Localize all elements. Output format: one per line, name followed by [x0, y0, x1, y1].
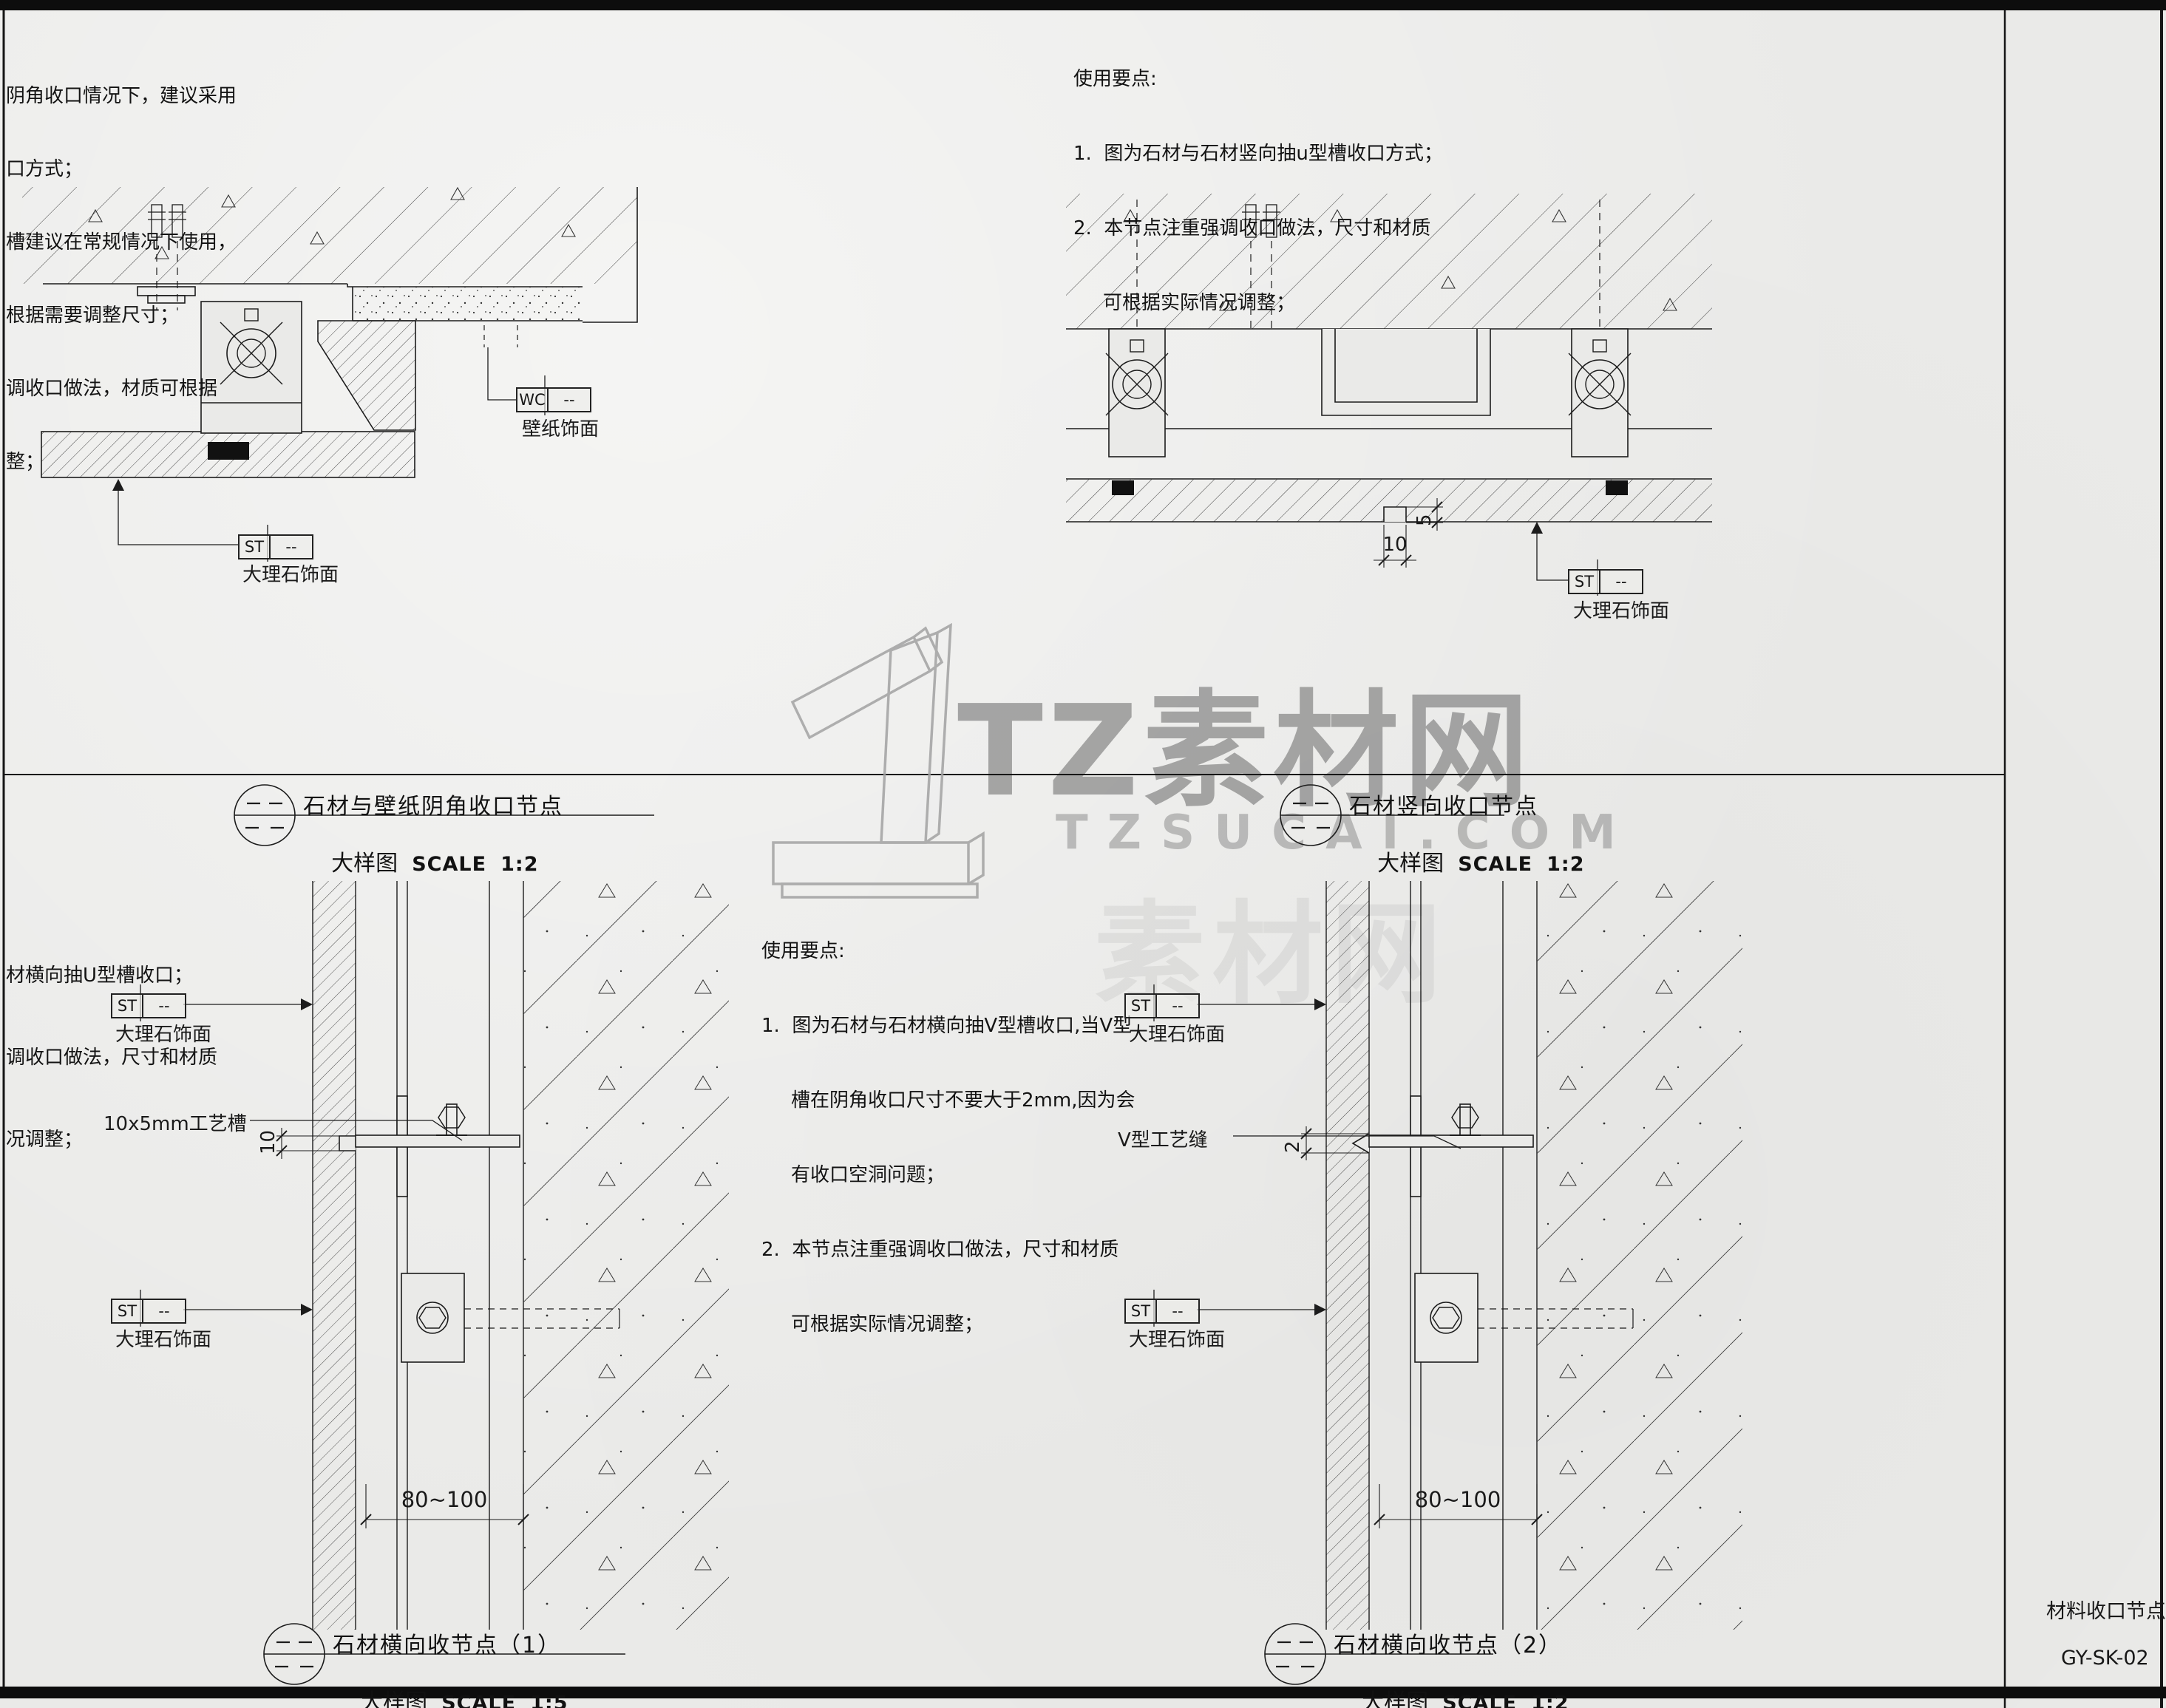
subtitle-type: 大样图 — [1362, 1690, 1428, 1708]
tag-code: ST — [1126, 1300, 1155, 1322]
note-line: 可根据实际情况调整； — [761, 1312, 1135, 1336]
tag-code: ST — [240, 536, 269, 558]
tag-value: -- — [1155, 995, 1198, 1017]
subtitle-type: 大样图 — [361, 1690, 427, 1708]
tag-code: ST — [1569, 571, 1599, 593]
top-border-bar — [0, 0, 2166, 10]
subtitle-type: 大样图 — [331, 851, 398, 877]
note-line: 阴角收口情况下，建议采用 — [6, 84, 237, 109]
note-line: 有收口空洞问题； — [761, 1163, 1135, 1187]
subtitle-scale-value: 1:5 — [530, 1692, 568, 1708]
detail-subtitle-d1: 大样图 SCALE 1:2 — [303, 819, 539, 903]
note-line: 槽建议在常规情况下使用， — [6, 231, 237, 255]
leader-arrow — [1314, 998, 1326, 1010]
material-tag-st-d1: ST -- — [238, 534, 313, 559]
dim-80-100-d3: 80~100 — [390, 1487, 498, 1512]
leader-arrow — [1531, 522, 1543, 534]
detail-subtitle-d2: 大样图 SCALE 1:2 — [1349, 819, 1585, 903]
notes-top-right: 使用要点: 1. 图为石材与石材竖向抽u型槽收口方式； 2. 本节点注重强调收口… — [1073, 16, 1443, 365]
material-label-marble: 大理石饰面 — [242, 559, 339, 587]
detail-title-d1: 石材与壁纸阴角收口节点 — [303, 788, 563, 820]
note-line: 1. 图为石材与石材竖向抽u型槽收口方式； — [1073, 141, 1443, 166]
detail-3-drawing — [140, 881, 729, 1630]
tag-value: -- — [1155, 1300, 1198, 1322]
material-label-marble: 大理石饰面 — [115, 1324, 211, 1352]
detail-title-d2: 石材竖向收口节点 — [1349, 788, 1538, 820]
sealant-block — [1112, 480, 1134, 495]
notes-top-left: 阴角收口情况下，建议采用 口方式； 槽建议在常规情况下使用， 根据需要调整尺寸；… — [6, 35, 237, 523]
subtitle-scale-word: SCALE — [441, 1692, 516, 1708]
tag-value: -- — [1599, 571, 1642, 593]
dim-10-d3: 10 — [257, 1130, 279, 1154]
detail-title-d3: 石材横向收节点（1） — [333, 1627, 561, 1659]
subtitle-scale-word: SCALE — [1442, 1692, 1517, 1708]
material-label-marble: 大理石饰面 — [1129, 1019, 1225, 1047]
dim-10-d2: 10 — [1375, 534, 1415, 556]
sheet-number: GY-SK-02 — [2061, 1647, 2149, 1670]
material-tag-st-d4-upper: ST -- — [1124, 993, 1200, 1018]
material-tag-st-d3-lower: ST -- — [111, 1299, 186, 1324]
tag-value: -- — [269, 536, 312, 558]
tag-value: -- — [142, 1300, 185, 1322]
material-label-marble: 大理石饰面 — [1573, 596, 1669, 623]
detail-subtitle-d4: 大样图 SCALE 1:2 — [1334, 1658, 1569, 1708]
material-label-wallpaper: 壁纸饰面 — [522, 414, 599, 441]
note-line: 槽在阴角收口尺寸不要大于2mm,因为会 — [761, 1088, 1135, 1112]
dim-2-d4: 2 — [1282, 1140, 1304, 1153]
leader-arrow — [301, 998, 313, 1010]
notes-bottom-mid: 使用要点: 1. 图为石材与石材横向抽V型槽收口,当V型 槽在阴角收口尺寸不要大… — [761, 888, 1135, 1387]
note-heading: 使用要点: — [761, 939, 1135, 963]
tag-code: ST — [112, 995, 142, 1017]
note-line: 材横向抽U型槽收口； — [6, 962, 217, 990]
note-line: 调收口做法，材质可根据 — [6, 377, 237, 401]
subtitle-scale-word: SCALE — [1458, 853, 1532, 876]
notes-bottom-left: 材横向抽U型槽收口； 调收口做法，尺寸和材质 况调整； — [6, 908, 217, 1208]
groove-label: 10x5mm工艺槽 — [103, 1109, 247, 1136]
subtitle-scale-value: 1:2 — [1531, 1692, 1569, 1708]
sheet-name: 材料收口节点-02 — [2046, 1595, 2166, 1624]
subtitle-scale-value: 1:2 — [500, 853, 538, 876]
detail-title-d4: 石材横向收节点（2） — [1334, 1627, 1562, 1659]
note-line: 2. 本节点注重强调收口做法，尺寸和材质 — [1073, 216, 1443, 240]
material-tag-st-d3-upper: ST -- — [111, 993, 186, 1018]
subtitle-scale-value: 1:2 — [1547, 853, 1584, 876]
drawing-sheet: TZ素材网 TZSUCAI.COM 素材网 — [0, 0, 2166, 1708]
material-tag-st-d4-lower: ST -- — [1124, 1299, 1200, 1324]
leader-arrow — [1314, 1304, 1326, 1316]
subtitle-type: 大样图 — [1377, 851, 1444, 877]
note-line: 根据需要调整尺寸； — [6, 304, 237, 328]
subtitle-scale-word: SCALE — [412, 853, 486, 876]
tag-value: -- — [142, 995, 185, 1017]
note-line: 调收口做法，尺寸和材质 — [6, 1044, 217, 1072]
detail-4-drawing — [1154, 881, 1742, 1630]
detail-subtitle-d3: 大样图 SCALE 1:5 — [333, 1658, 568, 1708]
material-tag-st-d2: ST -- — [1568, 569, 1643, 594]
note-heading: 使用要点: — [1073, 67, 1443, 91]
dim-80-100-d4: 80~100 — [1404, 1487, 1512, 1512]
note-line: 可根据实际情况调整； — [1073, 290, 1443, 315]
tag-code: WC — [517, 389, 547, 411]
tag-code: ST — [112, 1300, 142, 1322]
sealant-block — [1606, 480, 1628, 495]
material-tag-wc: WC -- — [516, 387, 591, 412]
material-label-marble: 大理石饰面 — [1129, 1324, 1225, 1352]
note-line: 口方式； — [6, 157, 237, 182]
bottom-border-bar — [0, 1687, 2166, 1698]
note-line: 整； — [6, 450, 237, 474]
tag-code: ST — [1126, 995, 1155, 1017]
dim-5-d2: 5 — [1413, 514, 1436, 526]
tag-value: -- — [547, 389, 590, 411]
watermark-logo-1 — [773, 625, 983, 897]
note-line: 2. 本节点注重强调收口做法，尺寸和材质 — [761, 1237, 1135, 1262]
vseam-label: V型工艺缝 — [1118, 1125, 1208, 1152]
leader-arrow — [301, 1304, 313, 1316]
note-line: 1. 图为石材与石材横向抽V型槽收口,当V型 — [761, 1013, 1135, 1038]
material-label-marble: 大理石饰面 — [115, 1019, 211, 1047]
